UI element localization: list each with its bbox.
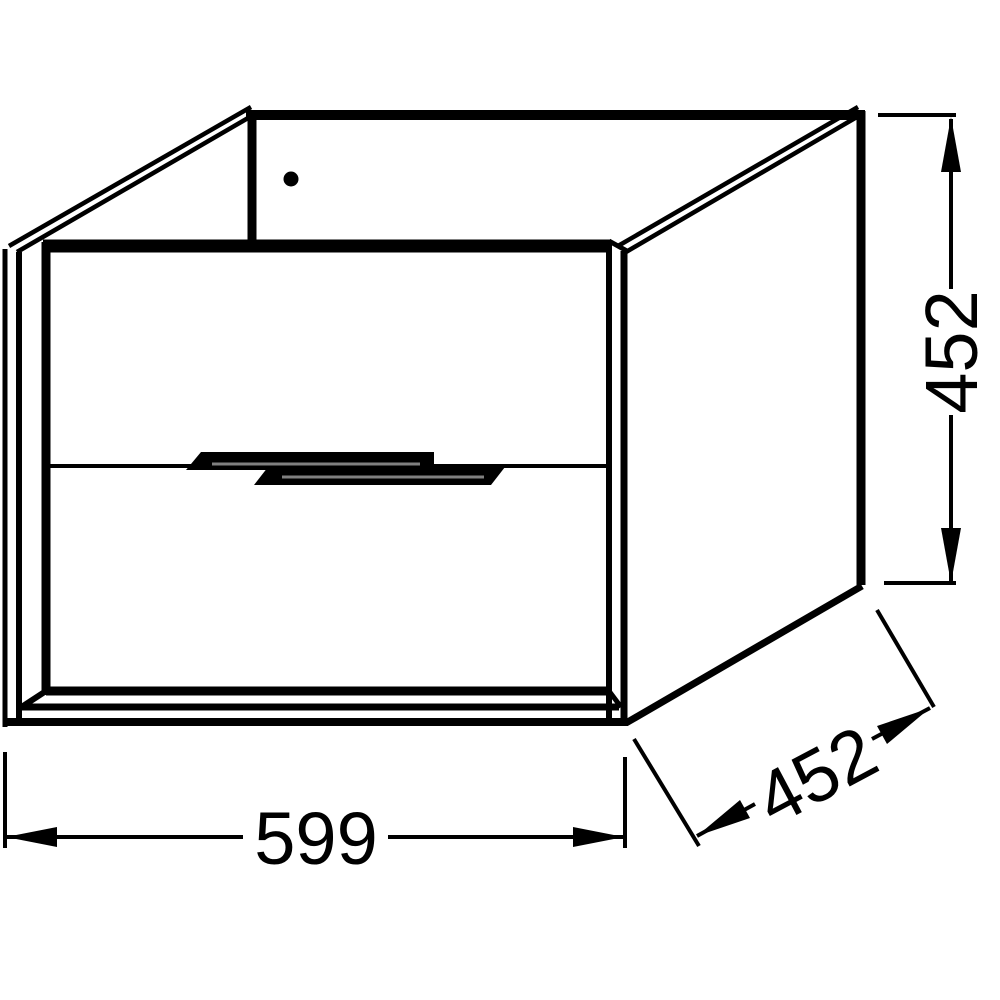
height-arrow-up [941, 117, 961, 172]
width-dimension-label: 599 [254, 797, 377, 880]
technical-drawing-canvas: 599 452 452 [0, 0, 1000, 1000]
side-bottom-edge [626, 586, 862, 723]
dimension-depth: 452 [634, 610, 934, 846]
depth-dimension-label: 452 [742, 710, 890, 841]
depth-extension-line-front [634, 739, 699, 846]
back-panel-hole [284, 172, 299, 187]
top-right-edge-inner [626, 114, 862, 252]
cabinet-outline [5, 107, 865, 727]
top-left-edge-inner [17, 114, 255, 252]
height-dimension-label: 452 [910, 290, 993, 413]
depth-arrow-front [697, 800, 750, 836]
depth-extension-line-back [877, 610, 934, 707]
top-left-edge-outer [9, 107, 251, 246]
width-arrow-left [6, 827, 57, 847]
height-arrow-down [941, 528, 961, 583]
depth-arrow-back [877, 708, 930, 744]
dimension-width: 599 [5, 752, 625, 880]
top-right-edge-outer [618, 107, 858, 246]
drawer-handles [186, 452, 505, 485]
dimension-height: 452 [878, 115, 993, 583]
width-arrow-right [573, 827, 624, 847]
cabinet-dimension-drawing: 599 452 452 [0, 0, 1000, 1000]
